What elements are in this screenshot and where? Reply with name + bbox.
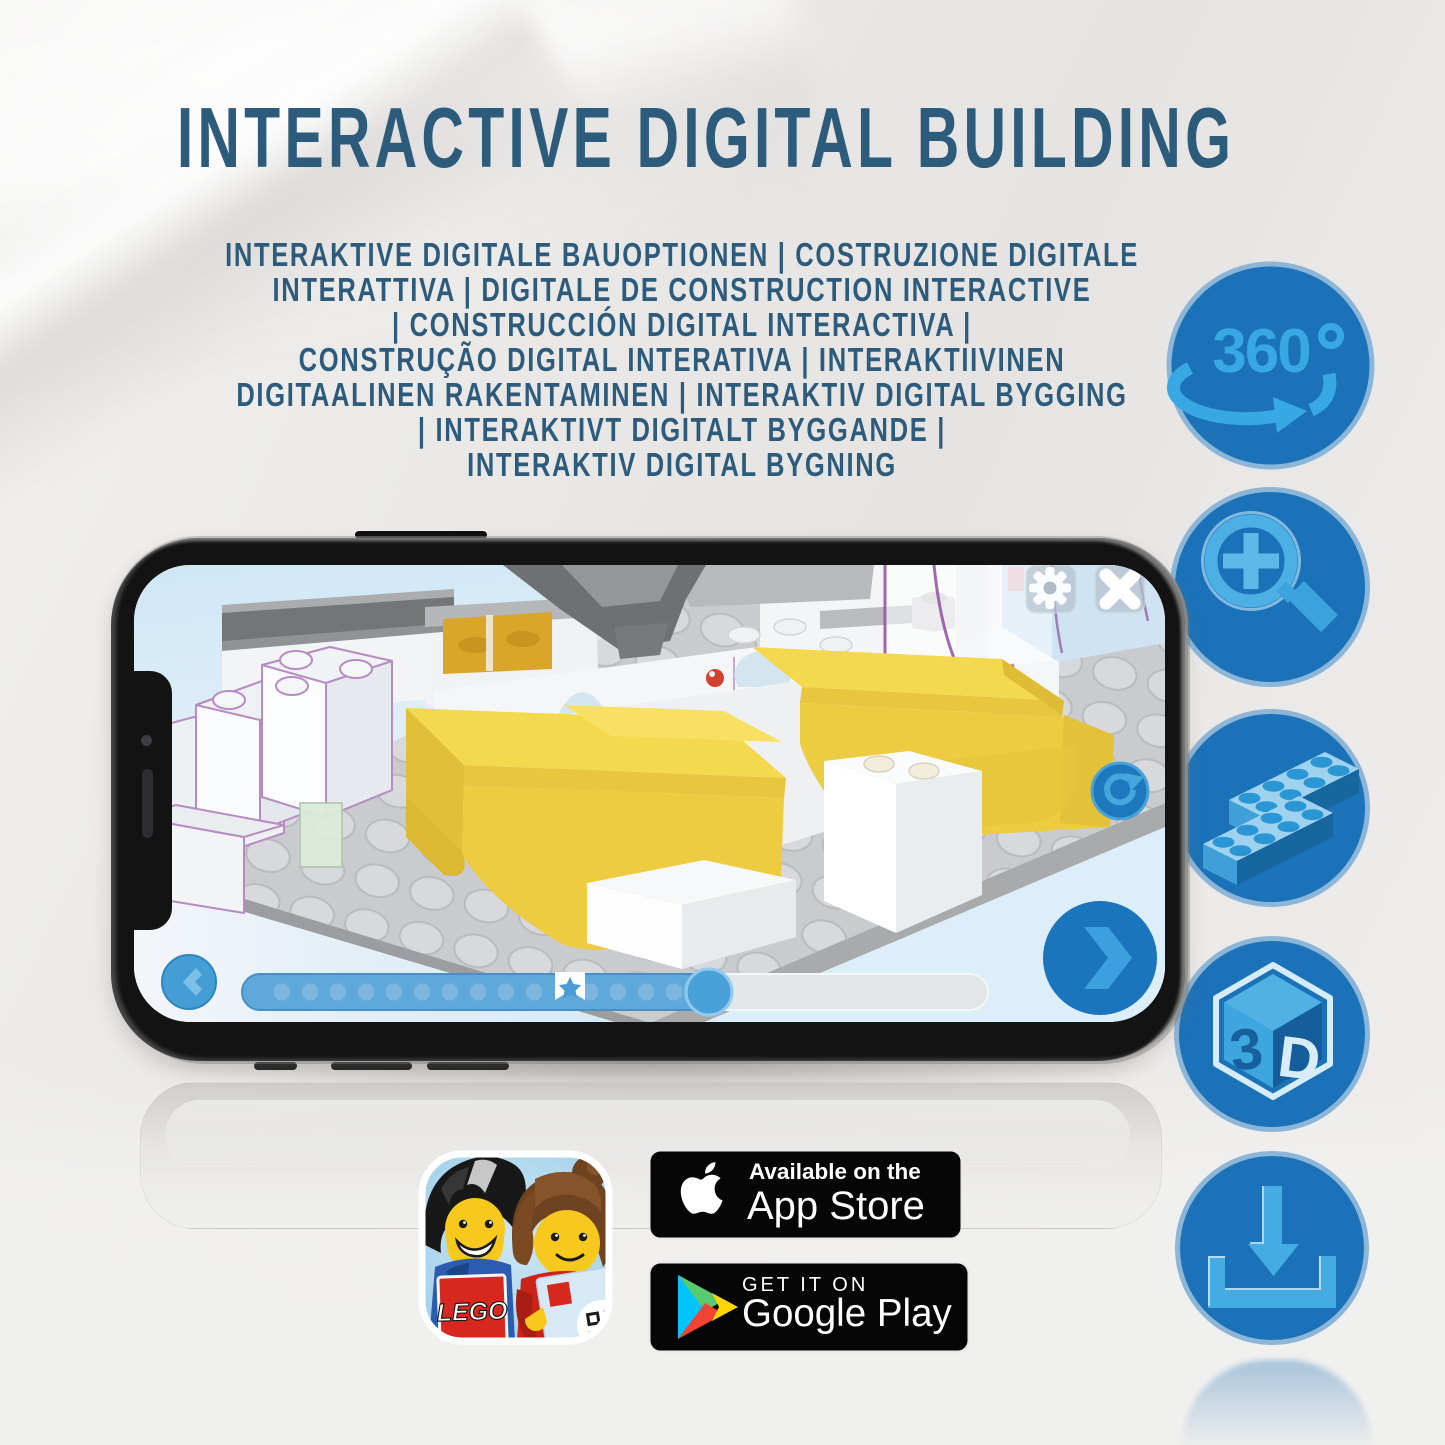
svg-text:Google Play: Google Play <box>742 1292 952 1335</box>
svg-text:Available on the: Available on the <box>749 1159 921 1184</box>
svg-text:App Store: App Store <box>747 1184 925 1228</box>
svg-text:D: D <box>1275 1024 1324 1094</box>
svg-text:LEGO: LEGO <box>436 1297 508 1327</box>
svg-text:360: 360 <box>1212 317 1309 386</box>
